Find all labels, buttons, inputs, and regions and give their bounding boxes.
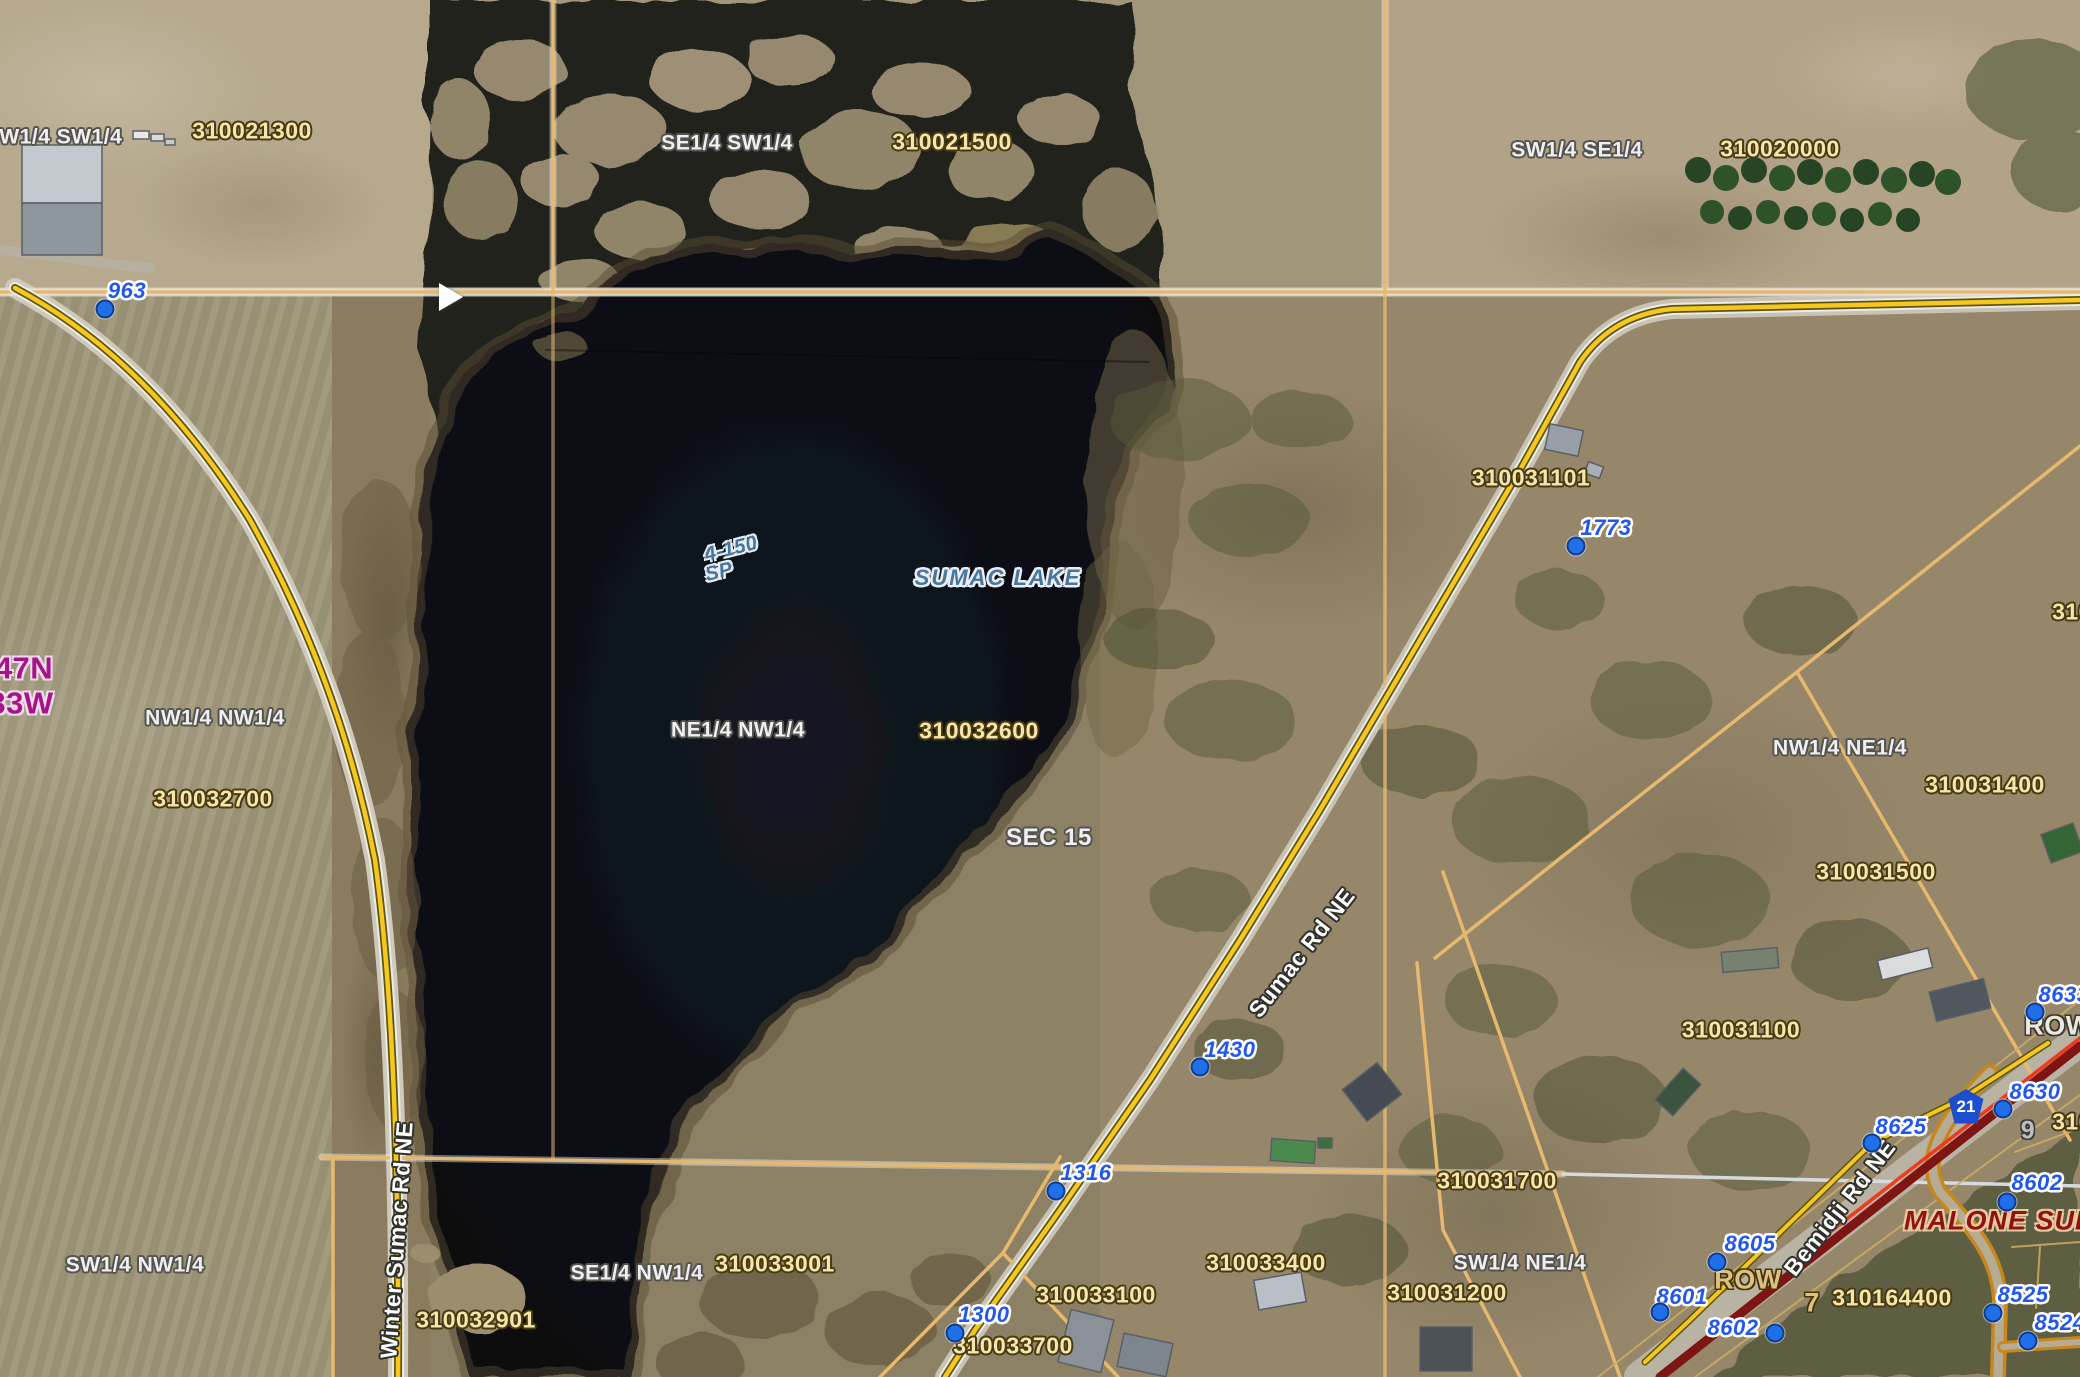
- mouse-cursor: [439, 283, 463, 311]
- map-label-address: 8525: [1998, 1284, 2049, 1306]
- map-label-road: Sumac Rd NE: [1245, 884, 1359, 1021]
- map-label-parcel: 310021500: [892, 131, 1012, 154]
- map-canvas[interactable]: 3100213003100215003100200003100327003100…: [0, 0, 2080, 1377]
- map-label-quarter: NW1/4 SW1/4: [0, 127, 122, 148]
- map-label-parcel: 310032600: [919, 720, 1039, 743]
- map-label-quarter: SW1/4 SE1/4: [1511, 140, 1643, 161]
- map-label-quarter: NW1/4 NW1/4: [145, 708, 285, 729]
- address-point: [1863, 1134, 1882, 1153]
- map-label-address: 8633: [2039, 984, 2080, 1006]
- map-label-rowt: ROW: [1714, 1267, 1781, 1294]
- address-point: [96, 300, 115, 319]
- map-label-address: 1316: [1061, 1162, 1112, 1184]
- map-label-parcel: 310020000: [1720, 138, 1840, 161]
- map-label-parcel: 310031700: [1437, 1170, 1557, 1193]
- map-label-address: 8625: [1876, 1116, 1927, 1138]
- map-label-address: 963: [108, 280, 146, 302]
- map-label-parcel: 310033400: [1206, 1252, 1326, 1275]
- map-label-address: 1430: [1205, 1039, 1256, 1061]
- map-label-section: SEC 15: [1006, 826, 1092, 850]
- map-labels: 3100213003100215003100200003100327003100…: [0, 0, 2080, 1377]
- map-label-shield: 21: [1947, 1089, 1985, 1125]
- map-label-lake: SUMAC LAKE: [915, 567, 1082, 589]
- map-label-parcel: 310: [2052, 601, 2080, 624]
- address-point: [2026, 1003, 2045, 1022]
- map-label-address: 8602: [1708, 1317, 1759, 1339]
- map-label-road: Winter Sumac Rd NE: [377, 1121, 417, 1360]
- map-label-parcel: 310032901: [416, 1309, 536, 1332]
- address-point: [1191, 1058, 1210, 1077]
- map-label-quarter: NW1/4 NE1/4: [1773, 738, 1907, 759]
- map-label-tr: 33W: [0, 688, 54, 719]
- map-label-address: 8605: [1725, 1233, 1776, 1255]
- map-label-address: 8630: [2010, 1081, 2061, 1103]
- address-point: [1998, 1193, 2017, 1212]
- map-label-quarter: SE1/4 SW1/4: [661, 133, 793, 154]
- map-label-address: 1300: [959, 1304, 1010, 1326]
- map-label-quarter: SE1/4 NW1/4: [571, 1263, 704, 1284]
- address-point: [2019, 1332, 2038, 1351]
- address-point: [1994, 1100, 2013, 1119]
- map-label-lott: 7: [1804, 1290, 1820, 1317]
- map-label-parcel: 310032700: [153, 788, 273, 811]
- map-label-parcel: 310031100: [1682, 1019, 1800, 1042]
- map-label-parcel: 310164400: [1832, 1287, 1952, 1310]
- map-label-lakesm: 4-150: [703, 533, 760, 565]
- address-point: [946, 1324, 965, 1343]
- map-label-quarter: SW1/4 NE1/4: [1454, 1253, 1587, 1274]
- address-point: [1766, 1324, 1785, 1343]
- map-label-parcel: 310021300: [192, 120, 312, 143]
- map-label-quarter: NE1/4 NW1/4: [671, 720, 805, 741]
- map-label-address: 1773: [1581, 517, 1632, 539]
- map-label-lakesm: SP: [703, 559, 735, 585]
- map-label-road: Bemidji Rd NE: [1780, 1136, 1900, 1280]
- address-point: [1708, 1253, 1727, 1272]
- map-label-parcel: 310: [2052, 1111, 2080, 1134]
- map-label-address: 8602: [2012, 1172, 2063, 1194]
- map-label-parcel: 310033700: [953, 1335, 1073, 1358]
- map-label-parcel: 310031500: [1816, 861, 1936, 884]
- map-label-address: 8524: [2035, 1312, 2080, 1334]
- address-point: [1984, 1304, 2003, 1323]
- map-label-lotg: 9: [2021, 1119, 2035, 1144]
- map-label-parcel: 310033001: [715, 1253, 835, 1276]
- address-point: [1047, 1182, 1066, 1201]
- map-label-parcel: 310031400: [1925, 774, 2045, 797]
- address-point: [1651, 1303, 1670, 1322]
- map-label-subd: MALONE SUBD: [1904, 1208, 2080, 1235]
- address-point: [1567, 537, 1586, 556]
- map-label-parcel: 310031101: [1472, 467, 1590, 490]
- map-label-quarter: SW1/4 NW1/4: [66, 1255, 205, 1276]
- map-label-parcel: 310033100: [1036, 1284, 1156, 1307]
- map-label-tr: 47N: [0, 653, 53, 684]
- map-label-parcel: 310031200: [1387, 1282, 1507, 1305]
